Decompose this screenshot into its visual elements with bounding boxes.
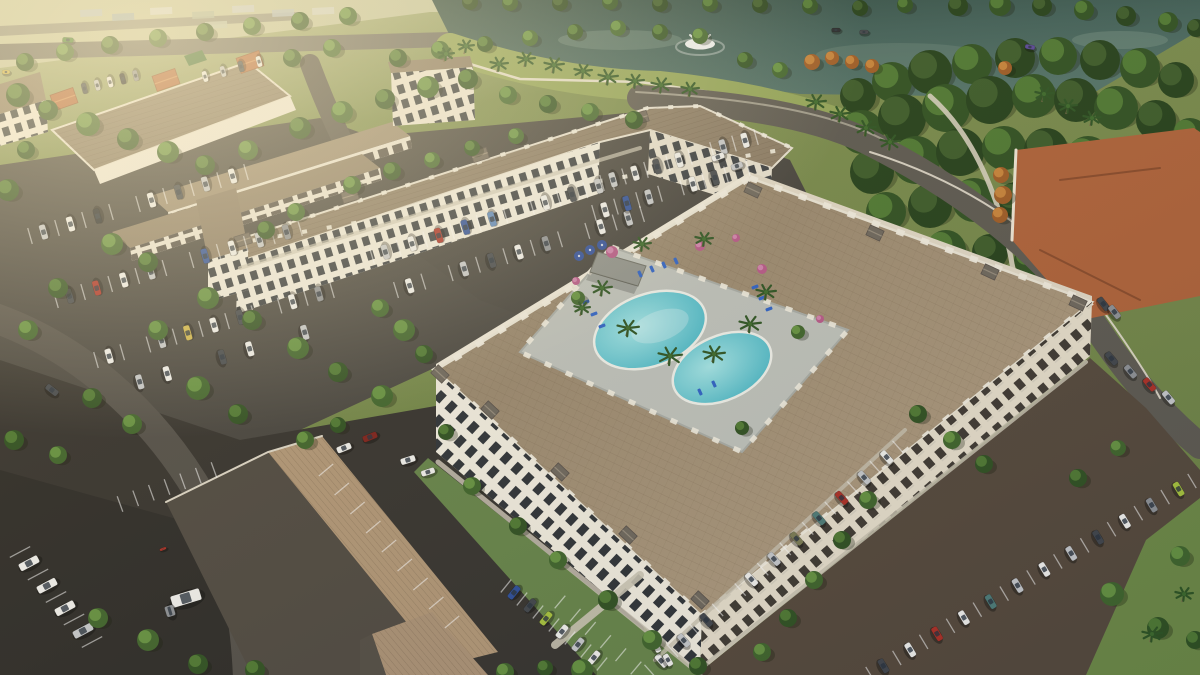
aerial-rendering-svg bbox=[0, 0, 1200, 675]
warm-tint bbox=[0, 0, 1200, 675]
screenshot-root bbox=[0, 0, 1200, 675]
